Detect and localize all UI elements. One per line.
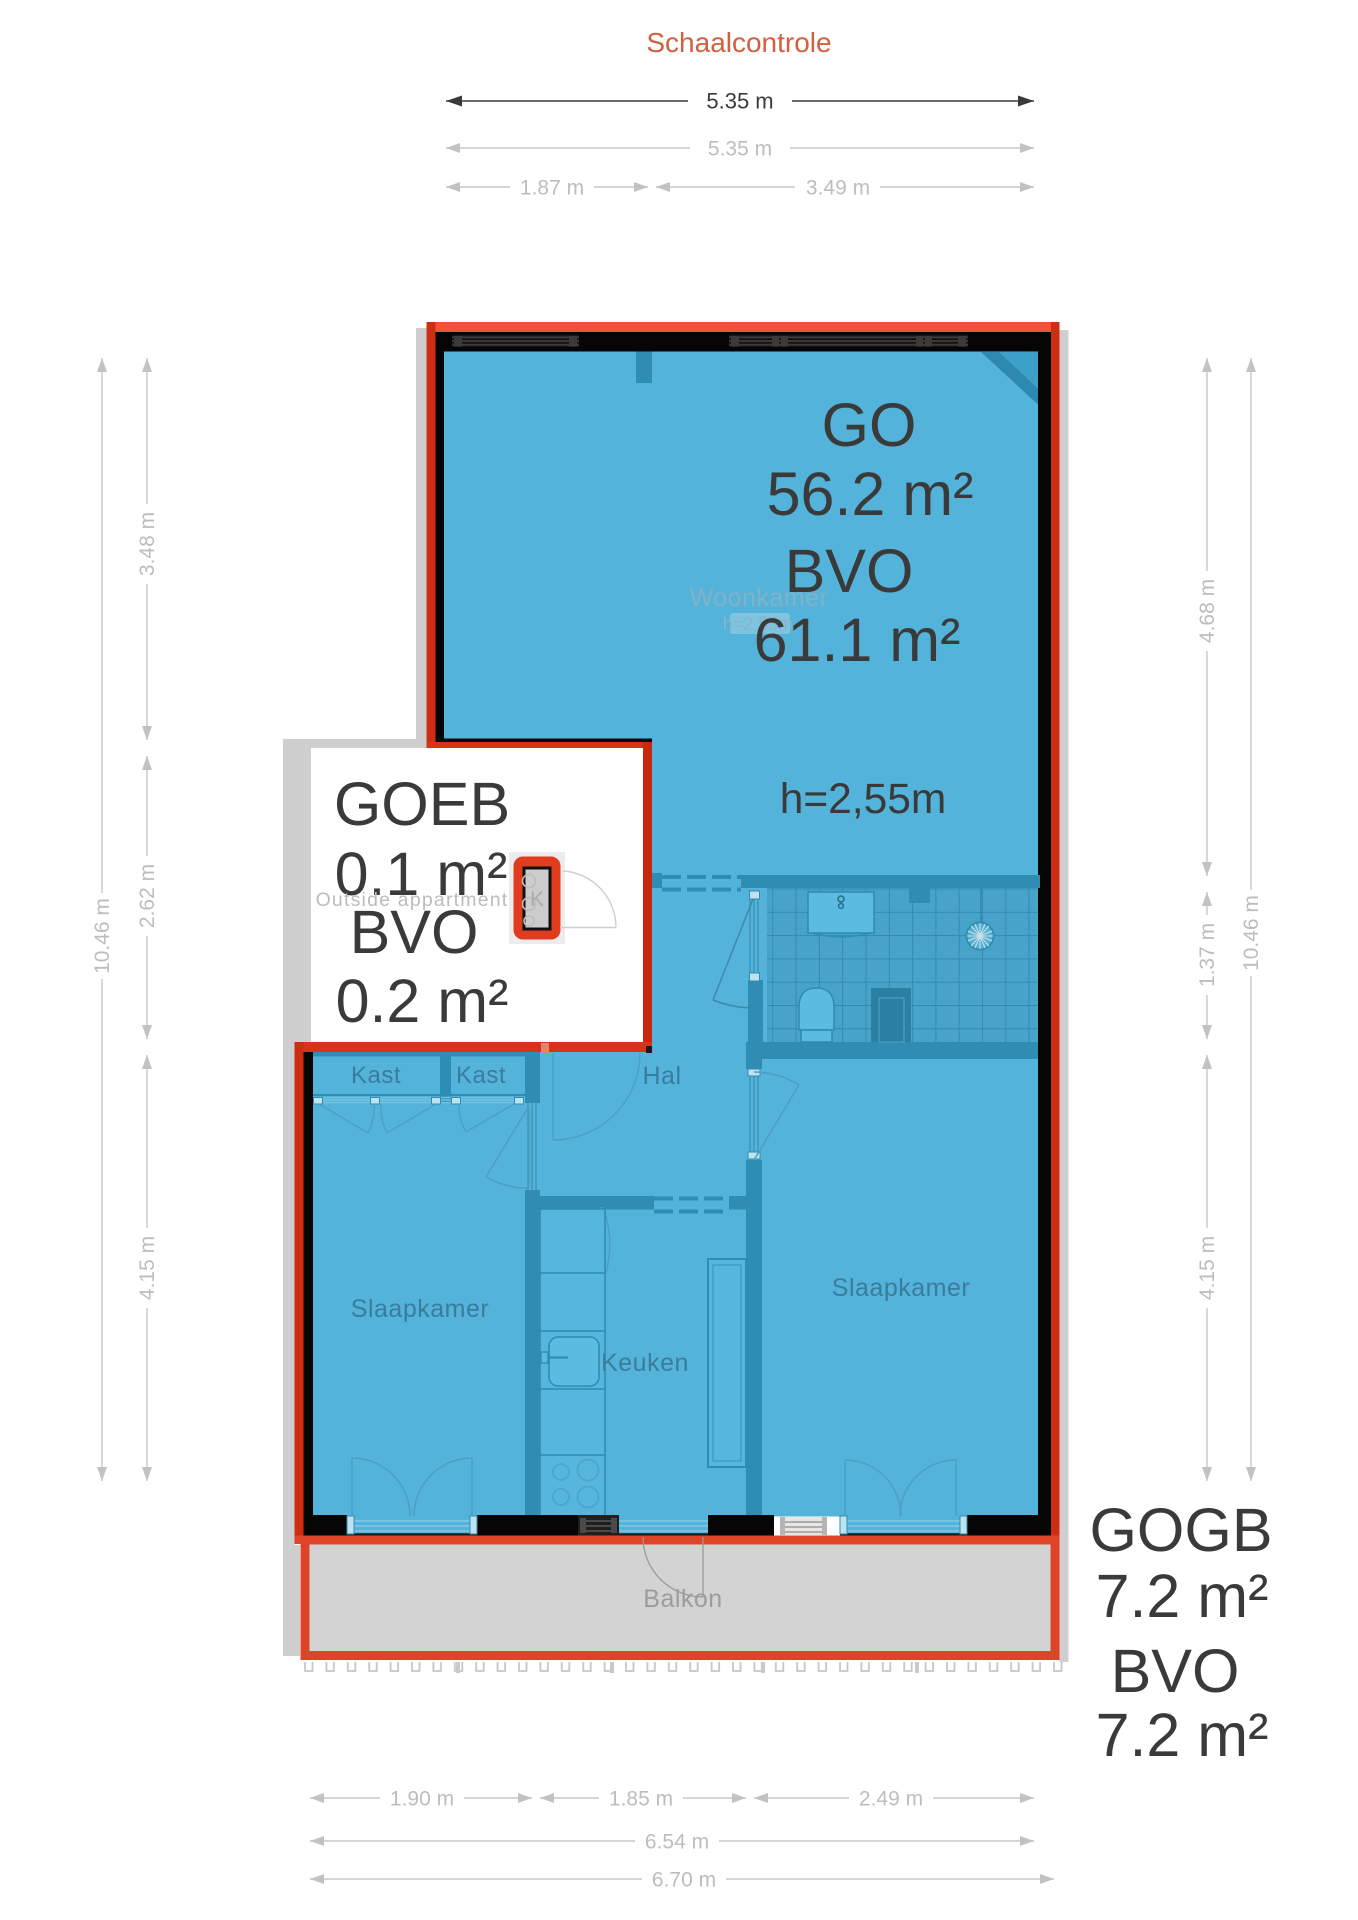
- svg-text:3.49 m: 3.49 m: [806, 177, 870, 200]
- svg-text:4.15 m: 4.15 m: [136, 1236, 159, 1300]
- svg-text:BVO: BVO: [350, 898, 479, 966]
- svg-text:7.2 m²: 7.2 m²: [1096, 1701, 1269, 1769]
- svg-text:1.85 m: 1.85 m: [609, 1788, 673, 1811]
- svg-text:5.35 m: 5.35 m: [706, 89, 773, 114]
- svg-text:Schaalcontrole: Schaalcontrole: [646, 27, 831, 58]
- svg-text:4.68 m: 4.68 m: [1196, 579, 1219, 643]
- svg-text:10.46 m: 10.46 m: [91, 898, 114, 974]
- svg-text:Kast: Kast: [351, 1062, 401, 1089]
- svg-text:Slaapkamer: Slaapkamer: [832, 1274, 970, 1302]
- svg-text:1.37 m: 1.37 m: [1196, 923, 1219, 987]
- svg-text:3.48 m: 3.48 m: [136, 512, 159, 576]
- svg-text:GO: GO: [822, 391, 917, 459]
- svg-text:Hal: Hal: [642, 1062, 681, 1090]
- svg-text:4.15 m: 4.15 m: [1196, 1236, 1219, 1300]
- svg-text:GOGB: GOGB: [1089, 1496, 1272, 1564]
- svg-text:BVO: BVO: [785, 537, 914, 605]
- svg-text:Balkon: Balkon: [643, 1585, 722, 1613]
- svg-text:56.2 m²: 56.2 m²: [767, 460, 974, 528]
- svg-text:5.35 m: 5.35 m: [708, 138, 772, 161]
- svg-text:Slaapkamer: Slaapkamer: [351, 1295, 489, 1323]
- svg-text:2.49 m: 2.49 m: [859, 1788, 923, 1811]
- svg-text:GOEB: GOEB: [334, 770, 510, 838]
- svg-text:10.46 m: 10.46 m: [1240, 895, 1263, 971]
- svg-text:1.87 m: 1.87 m: [520, 177, 584, 200]
- svg-text:h=2,55m: h=2,55m: [780, 776, 947, 823]
- svg-text:0.2 m²: 0.2 m²: [336, 967, 509, 1035]
- svg-text:K: K: [530, 888, 544, 911]
- svg-text:61.1 m²: 61.1 m²: [754, 606, 961, 674]
- svg-text:2.62 m: 2.62 m: [136, 864, 159, 928]
- svg-text:6.54 m: 6.54 m: [645, 1831, 709, 1854]
- svg-text:BVO: BVO: [1111, 1637, 1240, 1705]
- svg-text:7.2 m²: 7.2 m²: [1096, 1562, 1269, 1630]
- svg-text:Kast: Kast: [456, 1062, 506, 1089]
- svg-text:1.90 m: 1.90 m: [390, 1788, 454, 1811]
- svg-text:6.70 m: 6.70 m: [652, 1869, 716, 1892]
- svg-text:Keuken: Keuken: [601, 1349, 689, 1377]
